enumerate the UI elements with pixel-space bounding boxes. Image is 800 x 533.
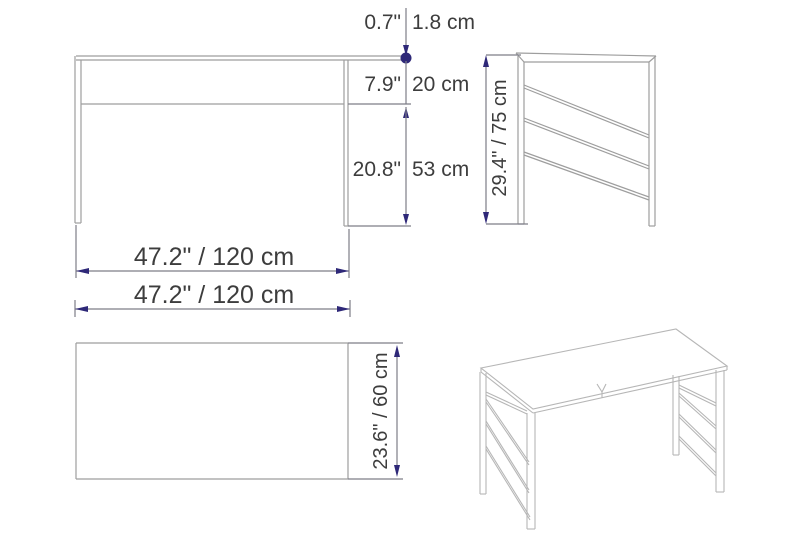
top-view-dimensions [75,300,403,479]
front-view-dimensions [76,8,412,278]
top-depth-label: 23.6" / 60 cm [370,352,392,469]
front-apron-height-label-in: 7.9" [364,73,401,96]
front-view-drawing [75,56,405,226]
dimension-diagram-page: 0.7" 1.8 cm 7.9" 20 cm 20.8" 53 cm 47.2"… [0,0,800,533]
perspective-view-drawing [480,329,727,529]
front-width-label: 47.2" / 120 cm [134,244,294,272]
top-view-drawing [76,343,348,479]
front-thickness-label-cm: 1.8 cm [412,11,475,34]
front-leg-clearance-label-cm: 53 cm [412,158,469,181]
top-width-label: 47.2" / 120 cm [134,282,294,310]
side-view-drawing [516,53,656,226]
front-leg-clearance-label-in: 20.8" [353,158,401,181]
front-thickness-label-in: 0.7" [364,11,401,34]
front-apron-height-label-cm: 20 cm [412,73,469,96]
side-height-label: 29.4" / 75 cm [489,79,511,196]
